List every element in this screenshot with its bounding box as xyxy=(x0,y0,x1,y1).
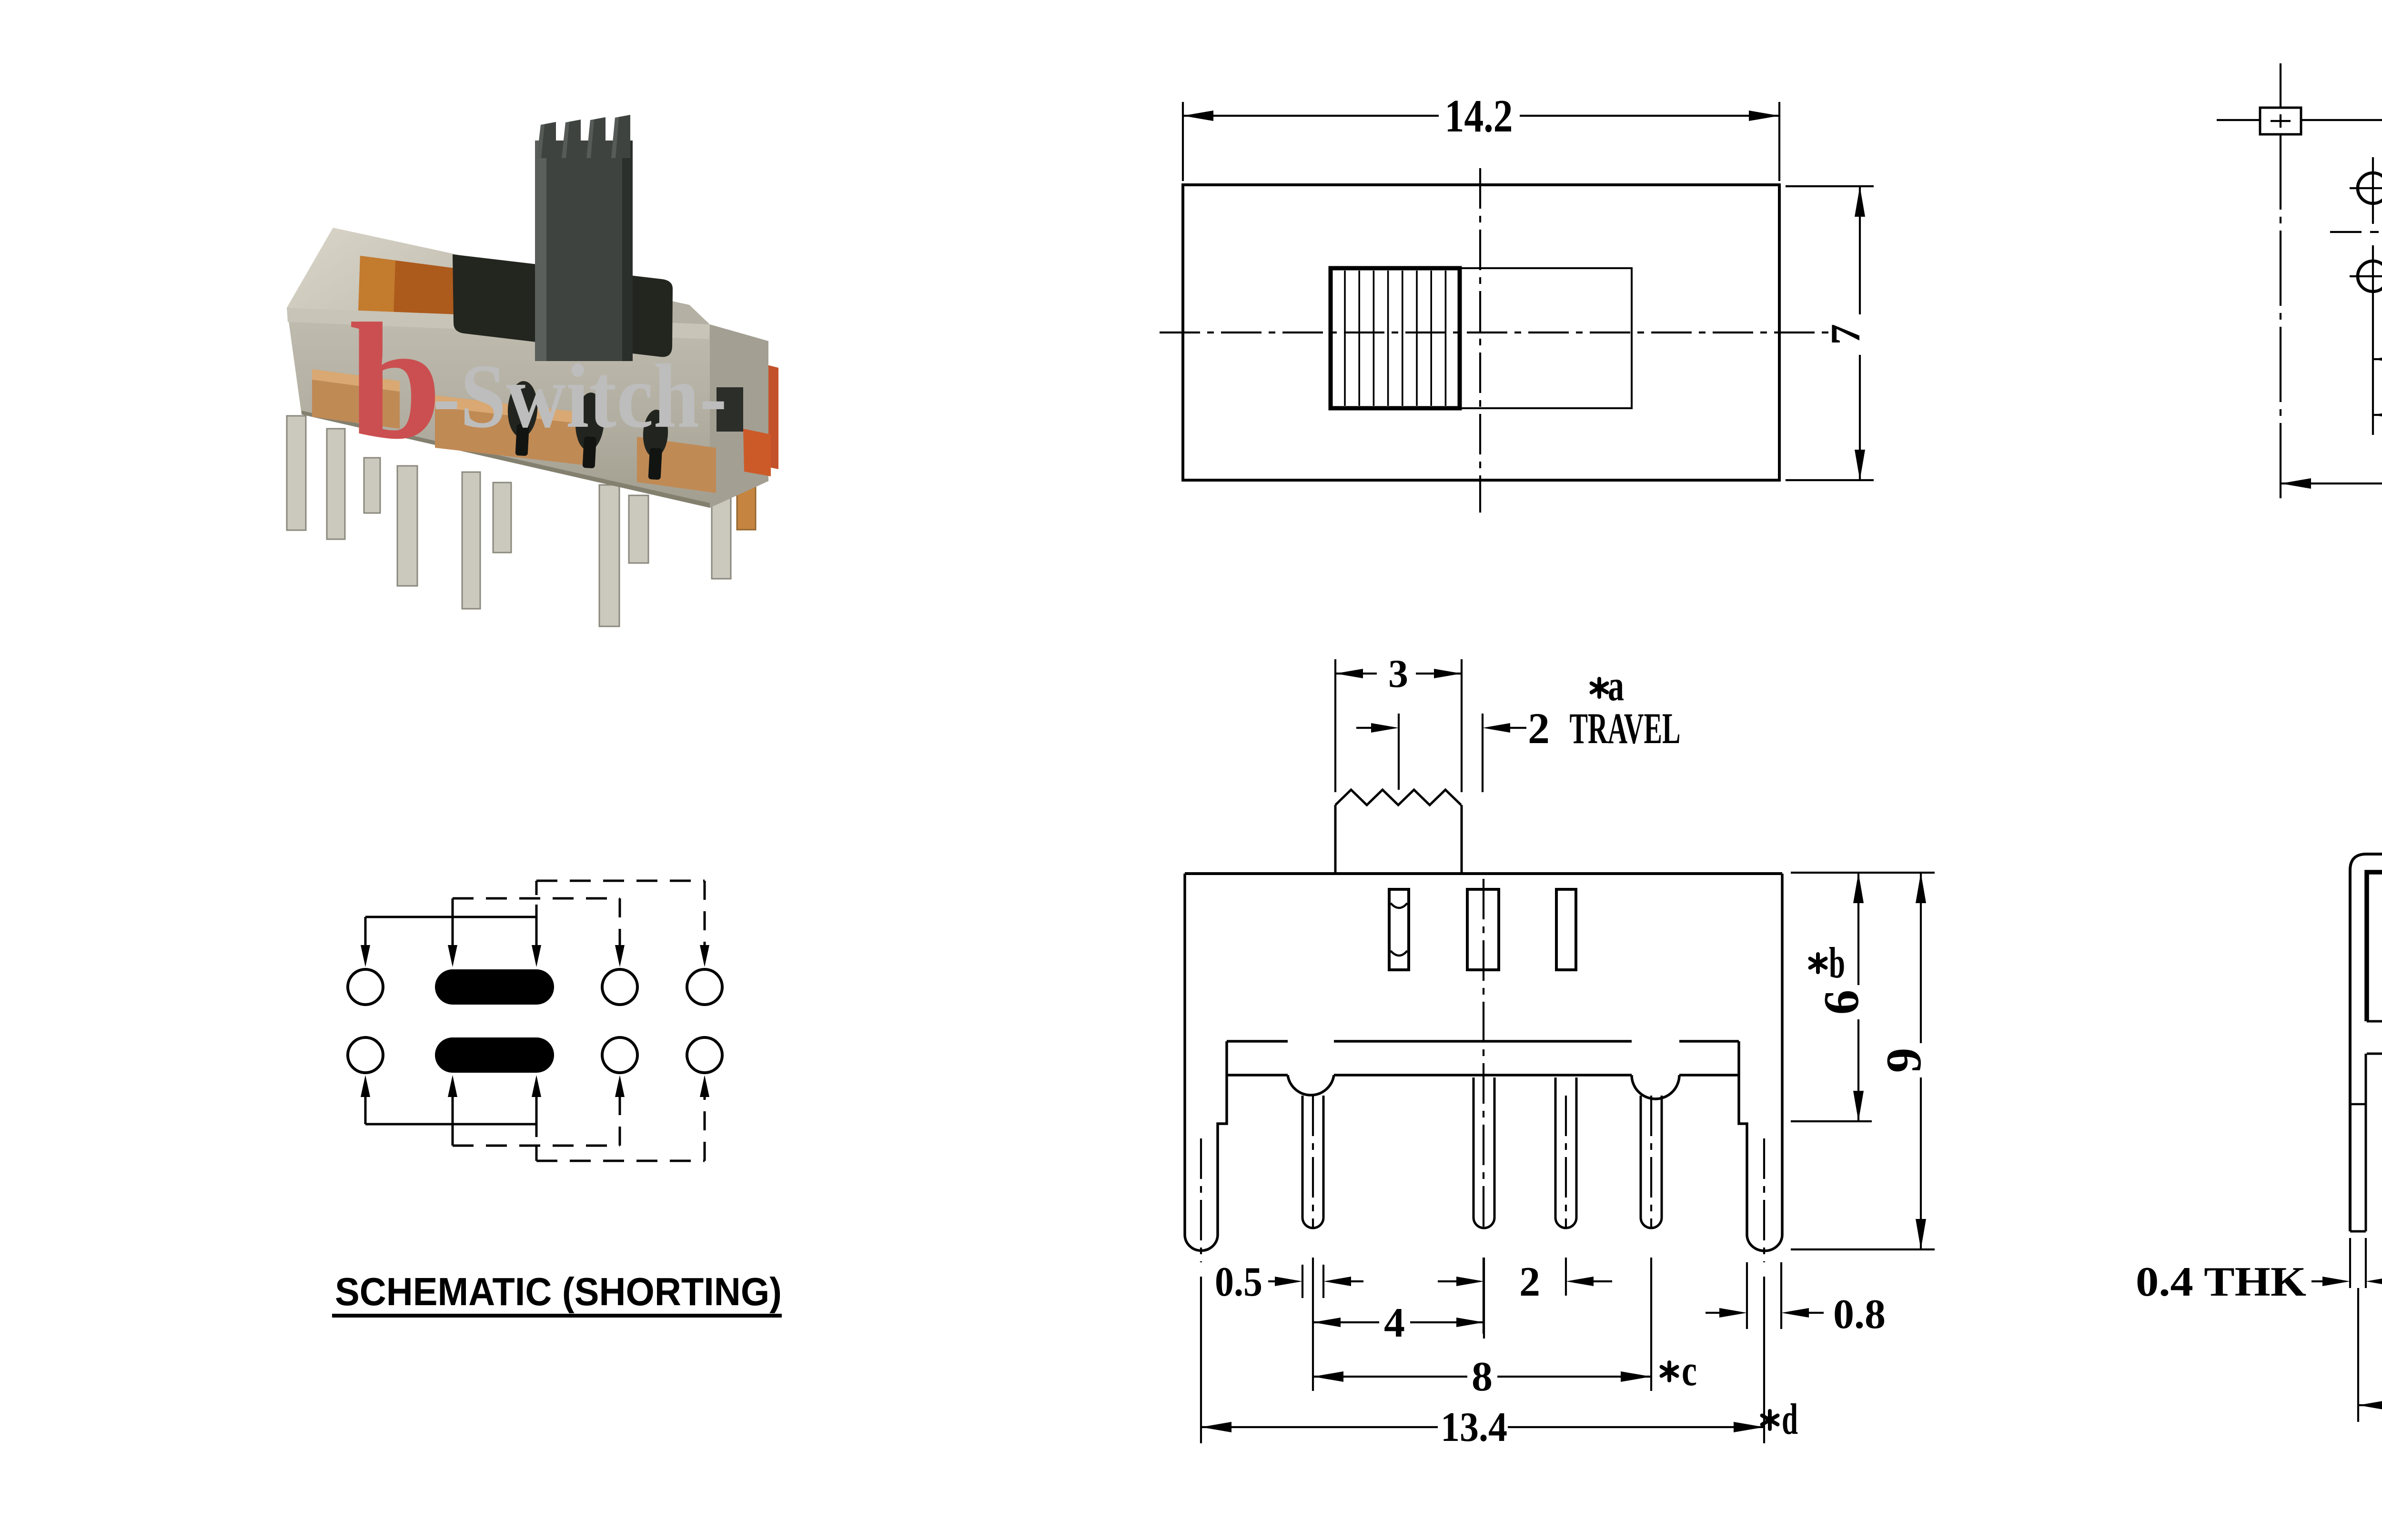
svg-text:13.4: 13.4 xyxy=(1441,1404,1507,1450)
svg-text:2: 2 xyxy=(1519,1259,1540,1305)
svg-text:2: 2 xyxy=(1528,704,1550,753)
svg-text:-Switch-: -Switch- xyxy=(433,345,727,447)
svg-text:14.2: 14.2 xyxy=(1445,91,1513,142)
svg-text:SCHEMATIC (SHORTING): SCHEMATIC (SHORTING) xyxy=(335,1269,782,1314)
svg-text:TRAVEL: TRAVEL xyxy=(1570,704,1681,753)
svg-text:8: 8 xyxy=(1472,1354,1493,1400)
svg-text:a: a xyxy=(1608,661,1624,710)
svg-text:b: b xyxy=(349,289,442,473)
svg-text:6: 6 xyxy=(1813,990,1869,1015)
svg-text:d: d xyxy=(1782,1395,1798,1443)
svg-text:3: 3 xyxy=(1388,652,1408,696)
svg-text:b: b xyxy=(1829,938,1845,987)
svg-text:7: 7 xyxy=(1823,324,1869,345)
svg-text:0.4 THK: 0.4 THK xyxy=(2136,1259,2306,1305)
svg-text:0.8: 0.8 xyxy=(1833,1291,1886,1338)
svg-text:9: 9 xyxy=(1876,1048,1931,1073)
svg-text:c: c xyxy=(1682,1346,1697,1395)
svg-text:0.5: 0.5 xyxy=(1215,1259,1262,1305)
svg-text:4: 4 xyxy=(1384,1300,1405,1346)
